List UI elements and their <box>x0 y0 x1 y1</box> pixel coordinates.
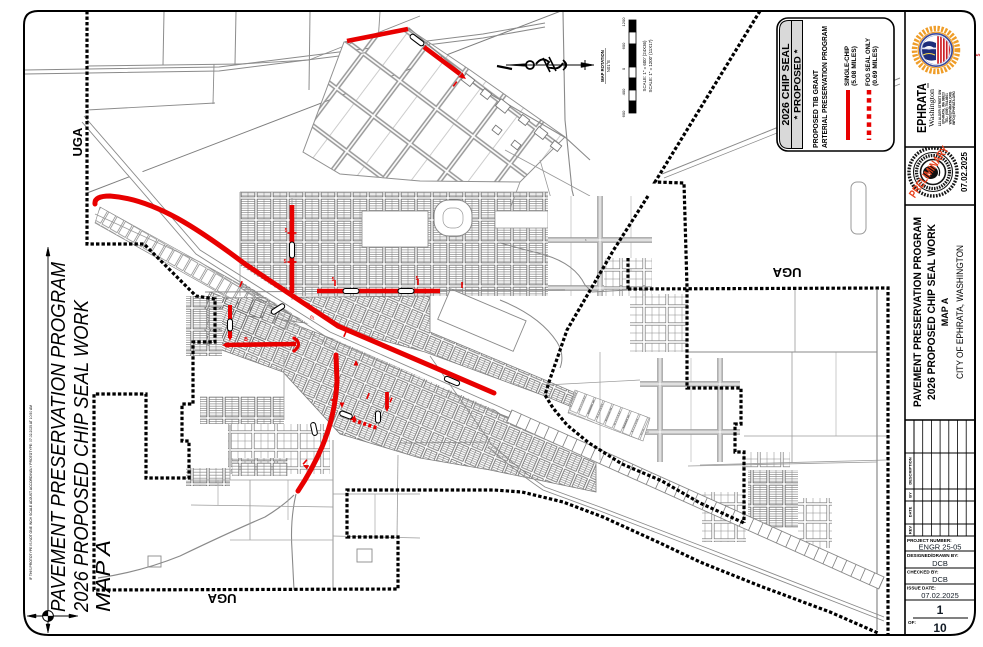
svg-text:UGA: UGA <box>772 265 802 280</box>
svg-text:SINGLE-CHIP: SINGLE-CHIP <box>844 45 851 86</box>
svg-text:2026 PROPOSED CHIP SEAL WORK: 2026 PROPOSED CHIP SEAL WORK <box>70 299 93 613</box>
svg-text:MAP A: MAP A <box>940 297 950 326</box>
svg-text:REV: REV <box>908 526 913 535</box>
svg-text:INFO@EPHRATA.ORG: INFO@EPHRATA.ORG <box>952 91 956 125</box>
svg-text:UGA: UGA <box>70 127 85 157</box>
svg-text:DCB: DCB <box>932 575 948 584</box>
svg-text:MAP ROTATION: MAP ROTATION <box>600 50 605 82</box>
svg-text:1: 1 <box>937 603 944 617</box>
svg-text:(5.08 MILES): (5.08 MILES) <box>851 46 858 86</box>
svg-text:UGA: UGA <box>207 591 237 606</box>
svg-text:CHECKED BY:: CHECKED BY: <box>907 570 939 575</box>
svg-text:5: 5 <box>332 277 335 283</box>
svg-text:5: 5 <box>284 259 287 265</box>
svg-text:PAVEMENT PRESERVATION PROGRAM: PAVEMENT PRESERVATION PROGRAM <box>912 217 924 407</box>
svg-text:SCALE: 1" = 1200' (11X17): SCALE: 1" = 1200' (11X17) <box>648 39 653 92</box>
svg-text:07.02.2025: 07.02.2025 <box>921 591 959 600</box>
svg-text:2026 PROPOSED CHIP SEAL WORK: 2026 PROPOSED CHIP SEAL WORK <box>926 224 938 400</box>
svg-text:DCB: DCB <box>932 559 948 568</box>
svg-text:600: 600 <box>621 42 626 49</box>
svg-text:ENGR 25-05: ENGR 25-05 <box>919 543 962 552</box>
svg-text:CITY OF EPHRATA, WASHINGTON: CITY OF EPHRATA, WASHINGTON <box>955 245 965 379</box>
svg-text:600: 600 <box>621 110 626 117</box>
svg-text:5: 5 <box>416 276 419 282</box>
svg-text:IF THIS PROTOTYPE IS NOT ONE I: IF THIS PROTOTYPE IS NOT ONE INCH SCALE … <box>29 405 33 580</box>
svg-text:PROPOSED TIB GRANT: PROPOSED TIB GRANT <box>811 69 820 148</box>
svg-text:MAP A: MAP A <box>92 540 115 612</box>
svg-text:BY: BY <box>908 492 913 498</box>
svg-text:ARTERIAL PRESERVATION PROGRAM: ARTERIAL PRESERVATION PROGRAM <box>820 26 829 148</box>
svg-text:* PROPOSED *: * PROPOSED * <box>793 49 804 119</box>
svg-text:2026 CHIP SEAL: 2026 CHIP SEAL <box>780 43 792 126</box>
svg-text:(0.69 MILES): (0.69 MILES) <box>872 46 879 86</box>
svg-text:N01°E: N01°E <box>606 60 611 72</box>
svg-text:PAVEMENT PRESERVATION PROGRAM: PAVEMENT PRESERVATION PROGRAM <box>47 261 70 612</box>
svg-text:OF:: OF: <box>908 620 916 625</box>
svg-text:ISSUE DATE:: ISSUE DATE: <box>907 586 936 591</box>
svg-text:1200: 1200 <box>621 17 626 27</box>
svg-text:FOG SEAL ONLY: FOG SEAL ONLY <box>865 37 872 86</box>
svg-text:DESIGNED/DRAWN BY:: DESIGNED/DRAWN BY: <box>907 553 959 558</box>
svg-text:DATE: DATE <box>908 506 913 517</box>
svg-text:5: 5 <box>976 53 982 56</box>
svg-text:400: 400 <box>621 88 626 95</box>
svg-text:Washington: Washington <box>927 89 936 127</box>
svg-text:5: 5 <box>285 228 288 234</box>
svg-text:SCALE: 1" = 600' (24X36): SCALE: 1" = 600' (24X36) <box>642 40 647 91</box>
svg-text:10: 10 <box>933 621 947 635</box>
svg-text:B: B <box>244 337 248 343</box>
svg-text:DESCRIPTION: DESCRIPTION <box>908 457 913 484</box>
svg-text:07.02.2025: 07.02.2025 <box>960 151 969 192</box>
